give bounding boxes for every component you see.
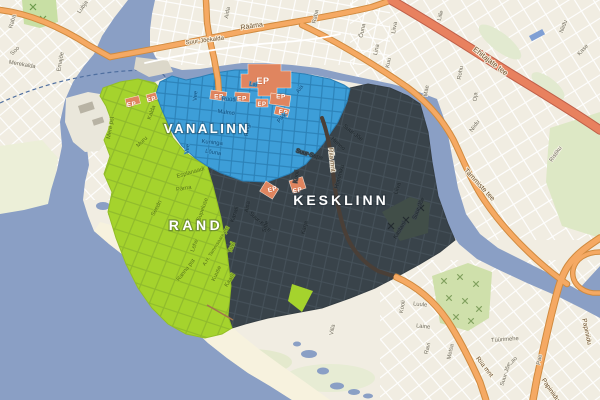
pond — [363, 394, 373, 399]
pond — [293, 342, 301, 347]
cemetery-east — [432, 263, 492, 331]
district-label-rand: RAND — [169, 217, 223, 233]
ep-label: EP — [237, 95, 247, 102]
street-label: Rüütli — [221, 96, 236, 103]
map-viewport[interactable]: EPEPEPEPEPEPEPEPEPEPRabaSooMerekaldaEmaj… — [0, 0, 600, 400]
map-canvas[interactable]: EPEPEPEPEPEPEPEPEPEPRabaSooMerekaldaEmaj… — [0, 0, 600, 400]
district-label-vanalinn: VANALINN — [164, 121, 250, 136]
ep-label: EP — [256, 76, 269, 86]
district-label-kesklinn: KESKLINN — [293, 192, 389, 208]
street-label: Vee — [185, 144, 192, 154]
street-label: Vee — [193, 91, 200, 101]
street-label: Lai — [249, 81, 258, 88]
pond — [330, 383, 344, 390]
ep-label: EP — [257, 102, 266, 108]
pond — [317, 368, 329, 375]
pond — [348, 389, 360, 395]
pond — [301, 350, 317, 358]
street-label: Oja — [473, 91, 480, 101]
pond — [96, 202, 110, 210]
ep-label: EP — [276, 93, 286, 100]
